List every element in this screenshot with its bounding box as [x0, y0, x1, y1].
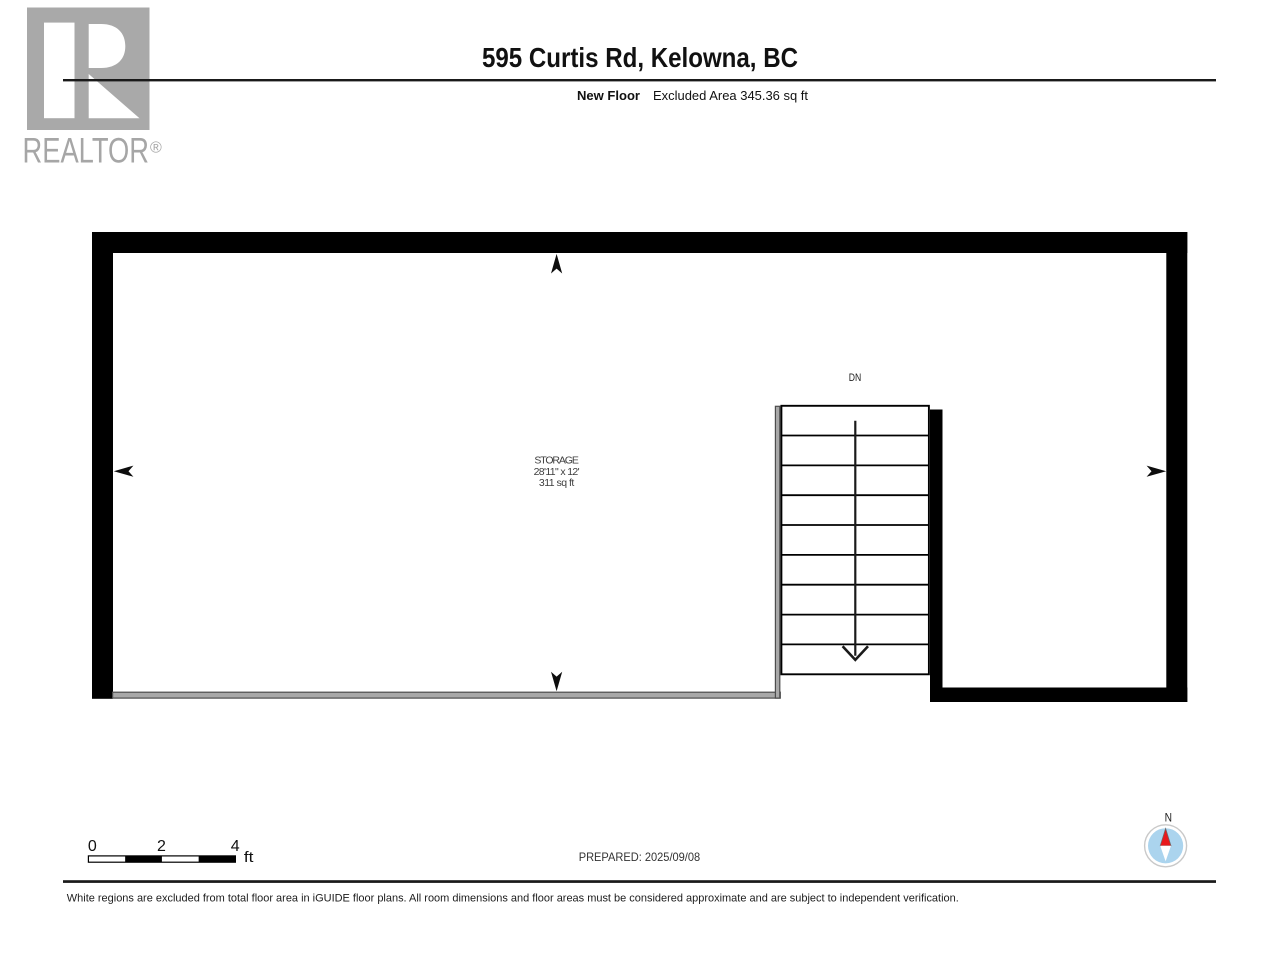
svg-text:PREPARED: 2025/09/08: PREPARED: 2025/09/08 [579, 850, 701, 864]
svg-text:DN: DN [849, 372, 862, 384]
svg-text:Excluded Area 345.36 sq ft: Excluded Area 345.36 sq ft [653, 88, 808, 103]
svg-text:0: 0 [88, 838, 97, 855]
svg-text:311 sq ft: 311 sq ft [539, 477, 575, 489]
svg-text:New Floor: New Floor [577, 88, 640, 103]
svg-text:White regions are excluded fro: White regions are excluded from total fl… [67, 893, 959, 905]
svg-text:N: N [1165, 813, 1172, 825]
svg-text:595 Curtis Rd, Kelowna, BC: 595 Curtis Rd, Kelowna, BC [482, 42, 798, 73]
svg-text:ft: ft [244, 850, 254, 866]
svg-text:STORAGE: STORAGE [534, 455, 579, 467]
svg-text:®: ® [150, 140, 162, 157]
svg-text:REALTOR: REALTOR [23, 131, 150, 171]
svg-text:4: 4 [231, 838, 240, 855]
svg-text:28'11" x 12': 28'11" x 12' [534, 466, 580, 478]
svg-text:2: 2 [157, 838, 166, 855]
